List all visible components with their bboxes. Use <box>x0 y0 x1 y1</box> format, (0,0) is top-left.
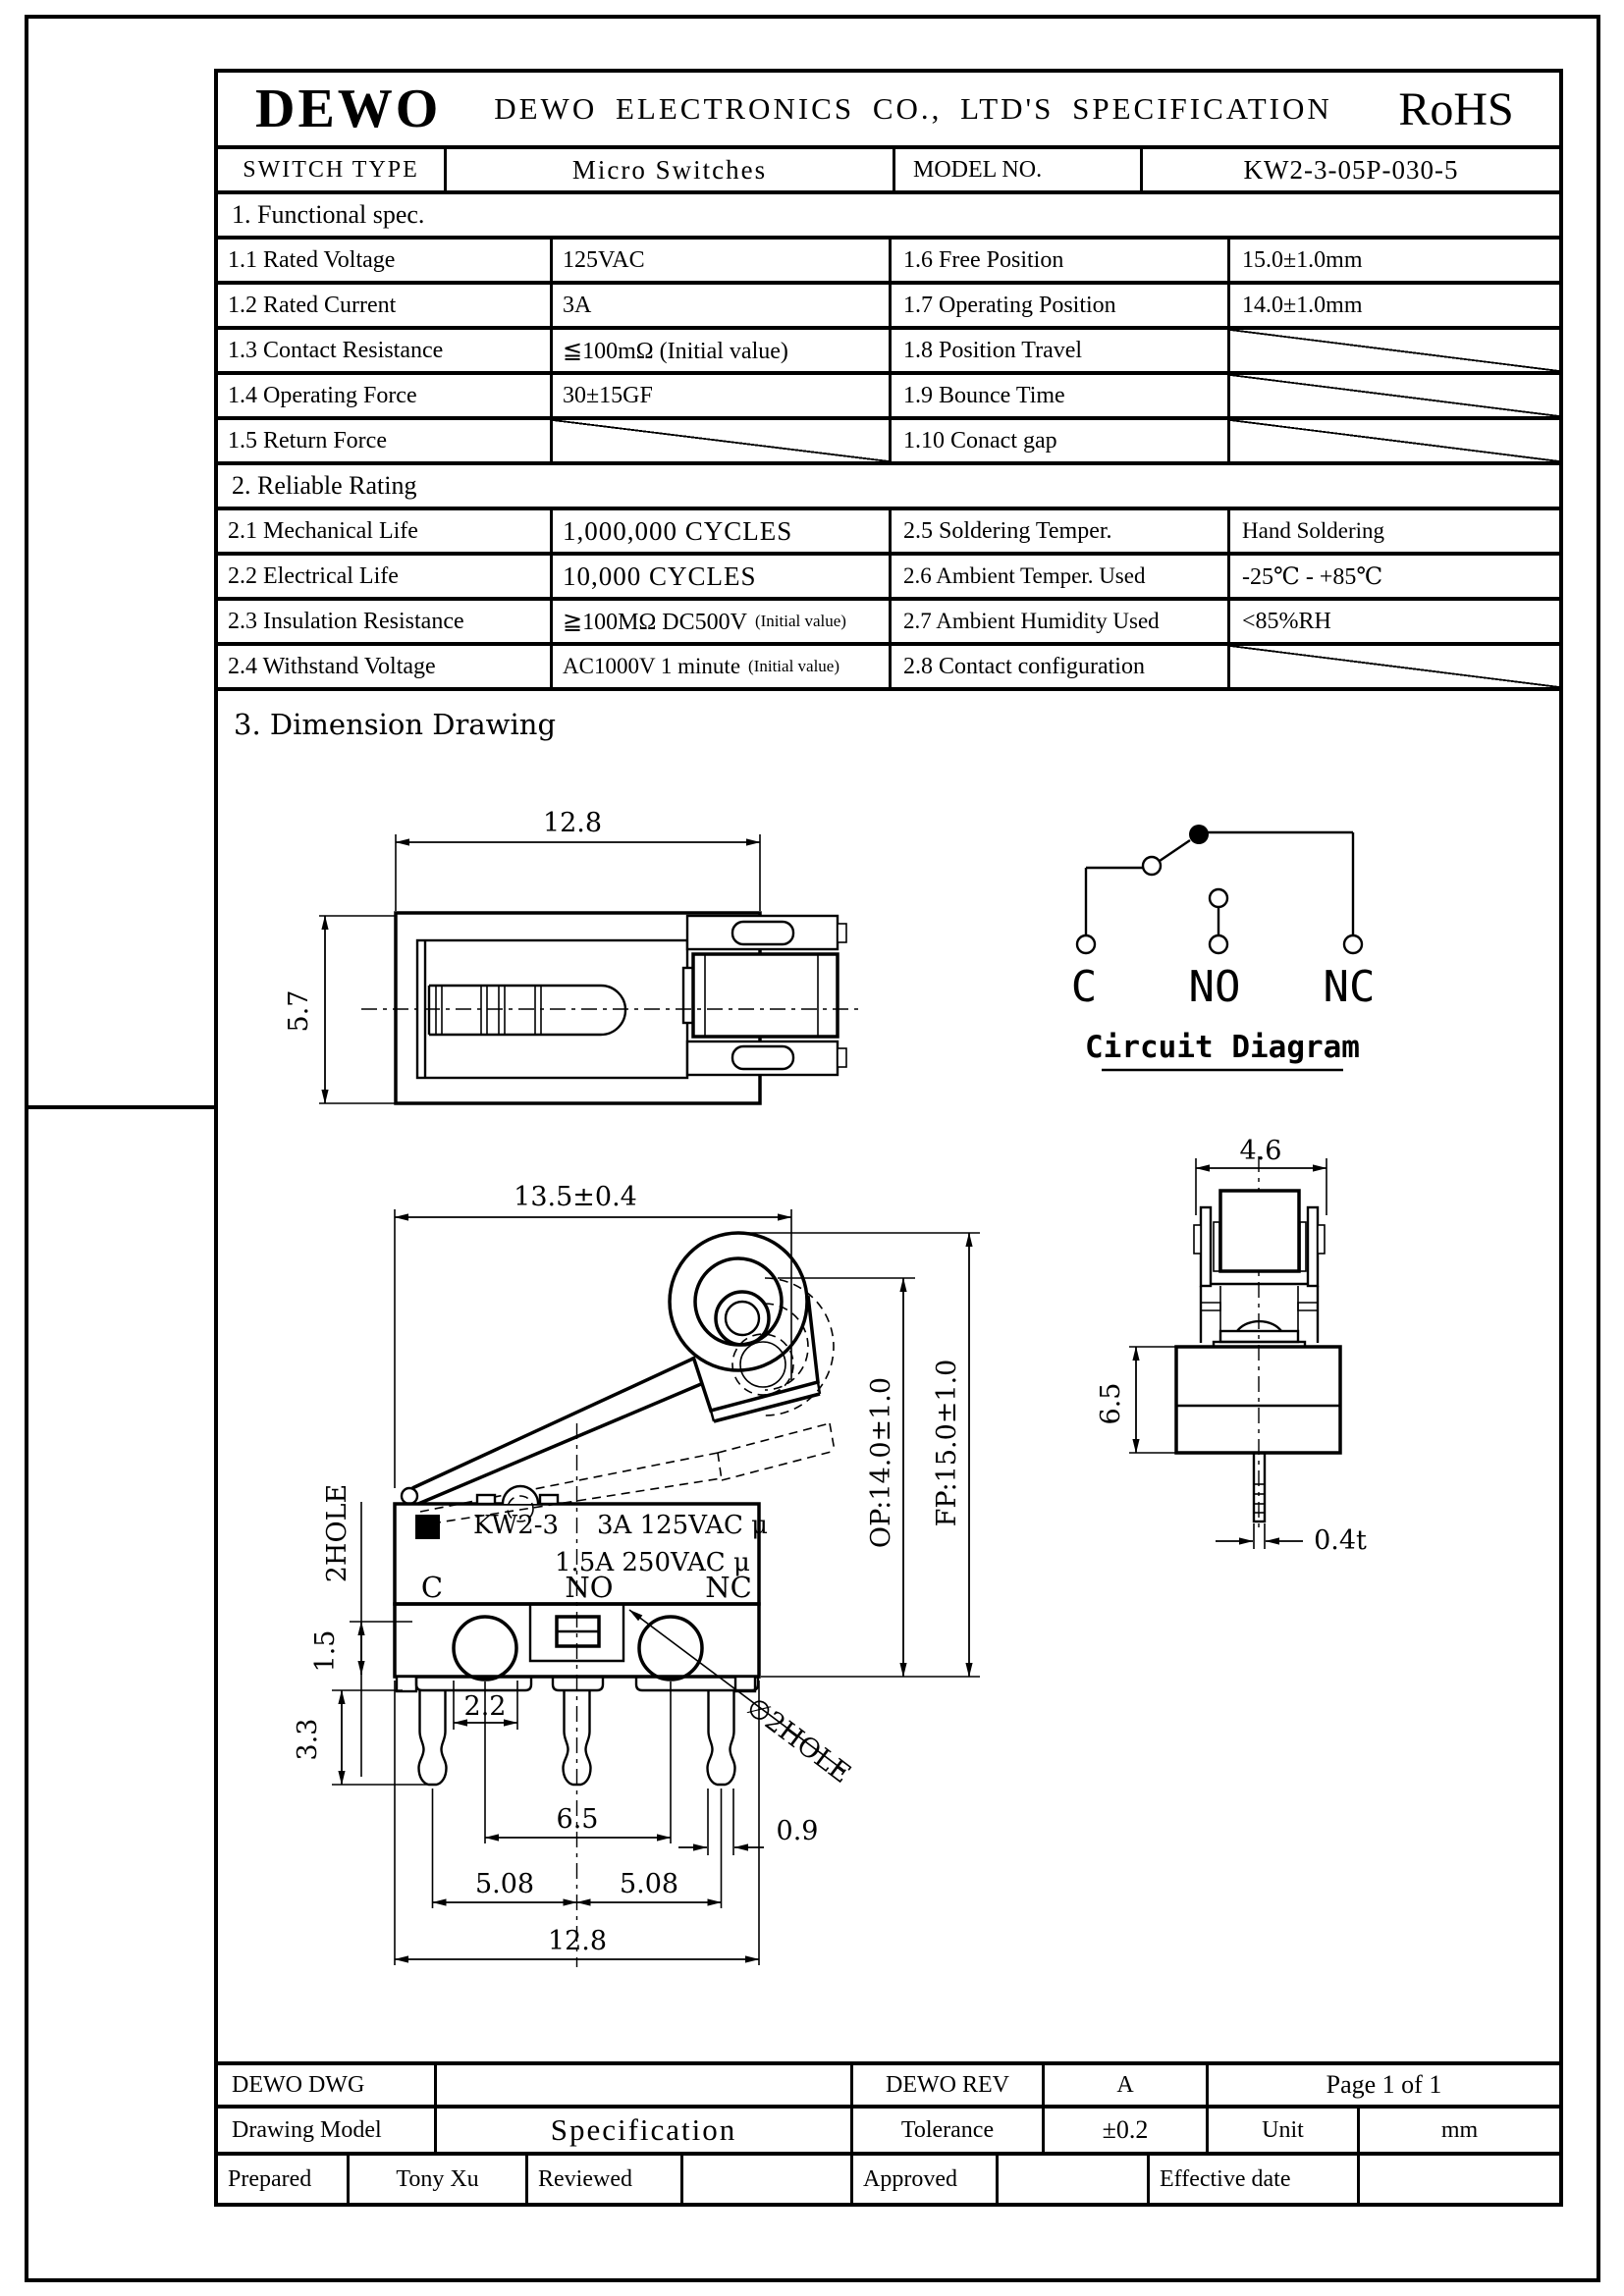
dimension-drawing-title: 3. Dimension Drawing <box>234 708 556 741</box>
side-height-dim: 6.5 <box>1096 1383 1126 1425</box>
rev-value: A <box>1042 2065 1206 2105</box>
dim-fp: FP:15.0±1.0 <box>932 1360 962 1527</box>
spec-label: 2.7 Ambient Humidity Used <box>889 601 1227 642</box>
model-row: SWITCH TYPE Micro Switches MODEL NO. KW2… <box>218 149 1559 194</box>
header-row: DEWO DEWO ELECTRONICS CO., LTD'S SPECIFI… <box>218 73 1559 149</box>
circuit-diagram-caption: Circuit Diagram <box>1085 1030 1360 1065</box>
spec-label: 2.5 Soldering Temper. <box>889 510 1227 552</box>
terminal-c-label: C <box>421 1571 443 1604</box>
rohs-mark: RoHS <box>1353 73 1559 145</box>
table-row: 2.2 Electrical Life 10,000 CYCLES 2.6 Am… <box>218 556 1559 601</box>
page-indicator: Page 1 of 1 <box>1206 2065 1559 2105</box>
drawing-model-label: Drawing Model <box>218 2109 434 2152</box>
spec-label: 2.2 Electrical Life <box>218 556 550 597</box>
front-width-dim: 13.5±0.4 <box>514 1182 637 1212</box>
spec-label: 1.2 Rated Current <box>218 285 550 326</box>
effective-date-label: Effective date <box>1147 2156 1357 2203</box>
dimension-drawing-area: 3. Dimension Drawing 12.8 5.7 <box>218 691 1559 2061</box>
switch-type-label: SWITCH TYPE <box>218 149 444 190</box>
spec-label: 1.7 Operating Position <box>889 285 1227 326</box>
spec-value: AC1000V 1 minute (Initial value) <box>550 646 889 687</box>
circuit-diagram: C NO NC Circuit Diagram <box>1071 825 1376 1070</box>
spec-label: 1.3 Contact Resistance <box>218 330 550 371</box>
front-view-drawing: 13.5±0.4 <box>293 1182 980 1967</box>
dim-6-5: 6.5 <box>557 1804 599 1835</box>
approved-value <box>996 2156 1147 2203</box>
table-row: 1.2 Rated Current 3A 1.7 Operating Posit… <box>218 285 1559 330</box>
tolerance-label: Tolerance <box>850 2109 1042 2152</box>
spec-label: 2.3 Insulation Resistance <box>218 601 550 642</box>
spec-value: 14.0±1.0mm <box>1227 285 1559 326</box>
unit-label: Unit <box>1206 2109 1357 2152</box>
unit-value: mm <box>1357 2109 1559 2152</box>
spec-label: 2.1 Mechanical Life <box>218 510 550 552</box>
terminal-c-node <box>1077 935 1095 953</box>
dim-1-5: 1.5 <box>310 1630 341 1673</box>
prepared-label: Prepared <box>218 2156 347 2203</box>
spec-value: 15.0±1.0mm <box>1227 240 1559 281</box>
company-logo: DEWO <box>218 73 473 145</box>
titleblock-row-1: DEWO DWG DEWO REV A Page 1 of 1 <box>218 2061 1559 2109</box>
dimension-drawing-svg: 3. Dimension Drawing 12.8 5.7 <box>218 691 1559 2061</box>
hole-dia-note: ∅2HOLE <box>740 1692 856 1789</box>
rev-label: DEWO REV <box>850 2065 1042 2105</box>
drawing-model-value: Specification <box>434 2109 850 2152</box>
spec-value: 10,000 CYCLES <box>550 556 889 597</box>
functional-spec-title: 1. Functional spec. <box>218 194 1559 240</box>
circuit-no-label: NO <box>1189 962 1241 1012</box>
spec-label: 1.8 Position Travel <box>889 330 1227 371</box>
spec-label: 1.10 Conact gap <box>889 420 1227 461</box>
dwg-value <box>434 2065 850 2105</box>
spec-label: 1.6 Free Position <box>889 240 1227 281</box>
titleblock-row-2: Drawing Model Specification Tolerance ±0… <box>218 2109 1559 2156</box>
side-view-drawing: 4.6 <box>1096 1136 1367 1556</box>
spec-value: 30±15GF <box>550 375 889 416</box>
top-view-height-dim: 5.7 <box>284 990 314 1033</box>
content-frame: DEWO DEWO ELECTRONICS CO., LTD'S SPECIFI… <box>214 69 1563 2207</box>
spec-value: ≦100mΩ (Initial value) <box>550 330 889 371</box>
circuit-nc-label: NC <box>1324 962 1376 1012</box>
reviewed-value <box>680 2156 850 2203</box>
table-row: 1.3 Contact Resistance ≦100mΩ (Initial v… <box>218 330 1559 375</box>
terminal-pin <box>708 1690 735 1785</box>
table-row: 2.4 Withstand Voltage AC1000V 1 minute (… <box>218 646 1559 691</box>
spec-label: 2.6 Ambient Temper. Used <box>889 556 1227 597</box>
spec-value-note: (Initial value) <box>748 657 839 676</box>
terminal-nc-label: NC <box>705 1571 752 1604</box>
spec-label: 2.8 Contact configuration <box>889 646 1227 687</box>
circuit-c-label: C <box>1071 962 1098 1012</box>
table-row: 1.5 Return Force 1.10 Conact gap <box>218 420 1559 465</box>
spec-value: -25℃ - +85℃ <box>1227 556 1559 597</box>
spec-value: 3A <box>550 285 889 326</box>
brand-mark: W <box>415 1518 438 1539</box>
top-view-drawing: 12.8 5.7 <box>284 808 864 1103</box>
terminal-no-label: NO <box>565 1571 613 1604</box>
dim-0-9: 0.9 <box>777 1816 819 1846</box>
spec-value-na <box>1227 375 1559 416</box>
model-no-label: MODEL NO. <box>893 149 1140 190</box>
spec-value: 1,000,000 CYCLES <box>550 510 889 552</box>
tolerance-value: ±0.2 <box>1042 2109 1206 2152</box>
spec-label: 2.4 Withstand Voltage <box>218 646 550 687</box>
side-width-dim: 4.6 <box>1240 1136 1282 1166</box>
spec-value: Hand Soldering <box>1227 510 1559 552</box>
scanned-spec-sheet: { "header": { "logo": "DEWO", "company":… <box>0 0 1624 2296</box>
dim-op: OP:14.0±1.0 <box>866 1377 896 1548</box>
company-title: DEWO ELECTRONICS CO., LTD'S SPECIFICATIO… <box>473 73 1353 145</box>
model-no-value: KW2-3-05P-030-5 <box>1140 149 1559 190</box>
two-hole-label: 2HOLE <box>322 1484 352 1583</box>
fold-mark-line <box>25 1105 214 1109</box>
terminal-nc-node <box>1344 935 1362 953</box>
dwg-label: DEWO DWG <box>218 2065 434 2105</box>
spec-value-na <box>1227 330 1559 371</box>
table-row: 2.3 Insulation Resistance ≧100MΩ DC500V … <box>218 601 1559 646</box>
table-row: 2.1 Mechanical Life 1,000,000 CYCLES 2.5… <box>218 510 1559 556</box>
titleblock-row-3: Prepared Tony Xu Reviewed Approved Effec… <box>218 2156 1559 2203</box>
spec-label: 1.9 Bounce Time <box>889 375 1227 416</box>
spec-label: 1.4 Operating Force <box>218 375 550 416</box>
body-marking-rating1: 3A 125VAC μ <box>597 1511 768 1540</box>
spec-value-na <box>1227 646 1559 687</box>
dim-12-8: 12.8 <box>548 1926 607 1956</box>
spec-value-note: (Initial value) <box>755 612 846 631</box>
dim-5-08-right: 5.08 <box>620 1869 678 1899</box>
table-row: 1.1 Rated Voltage 125VAC 1.6 Free Positi… <box>218 240 1559 285</box>
terminal-pin <box>419 1690 447 1785</box>
body-marking-model: KW2-3 <box>473 1511 559 1540</box>
pivot-node <box>1143 857 1161 875</box>
switch-type-value: Micro Switches <box>444 149 893 190</box>
spec-value: <85%RH <box>1227 601 1559 642</box>
dim-3-3: 3.3 <box>293 1719 323 1761</box>
spec-value: ≧100MΩ DC500V (Initial value) <box>550 601 889 642</box>
approved-label: Approved <box>850 2156 996 2203</box>
prepared-value: Tony Xu <box>347 2156 525 2203</box>
no-upper-node <box>1210 889 1227 907</box>
no-lower-node <box>1210 935 1227 953</box>
common-contact-node <box>1189 825 1209 844</box>
spec-value-main: AC1000V 1 minute <box>563 654 740 679</box>
top-view-width-dim: 12.8 <box>543 808 602 838</box>
reviewed-label: Reviewed <box>525 2156 680 2203</box>
spec-value-main: ≧100MΩ DC500V <box>563 608 747 636</box>
effective-date-value <box>1357 2156 1559 2203</box>
spec-label: 1.1 Rated Voltage <box>218 240 550 281</box>
spec-label: 1.5 Return Force <box>218 420 550 461</box>
spec-value-na <box>550 420 889 461</box>
dim-5-08-left: 5.08 <box>475 1869 534 1899</box>
spec-value: 125VAC <box>550 240 889 281</box>
spec-value-na <box>1227 420 1559 461</box>
side-thickness-dim: 0.4t <box>1314 1525 1367 1556</box>
reliable-rating-title: 2. Reliable Rating <box>218 465 1559 510</box>
table-row: 1.4 Operating Force 30±15GF 1.9 Bounce T… <box>218 375 1559 420</box>
